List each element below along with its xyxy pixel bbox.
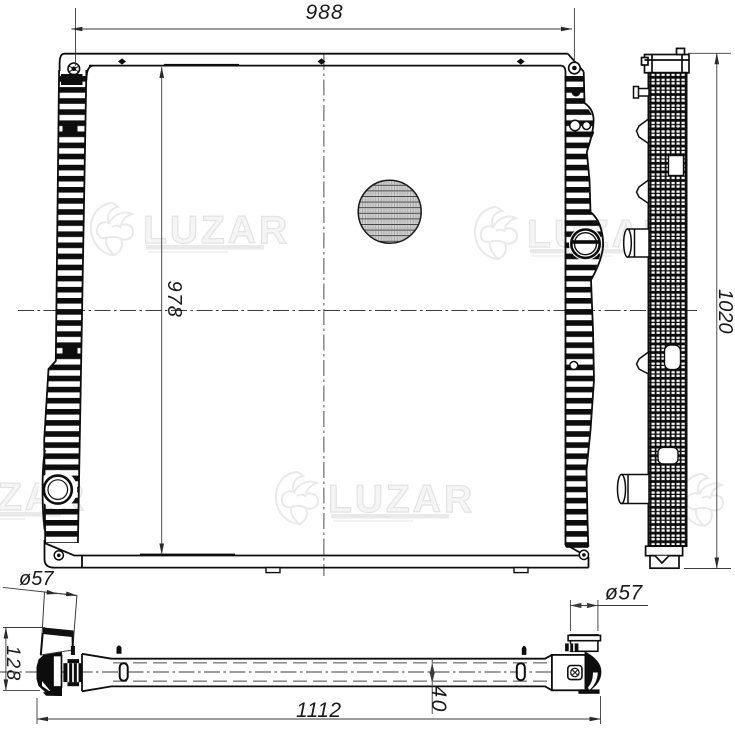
svg-text:988: 988 [306,1,344,24]
svg-text:1020: 1020 [714,289,735,334]
svg-text:40: 40 [427,686,450,714]
svg-text:978: 978 [163,281,185,319]
svg-text:ø57: ø57 [605,582,644,605]
svg-text:128: 128 [2,646,23,682]
svg-text:1112: 1112 [296,699,342,722]
svg-text:ø57: ø57 [19,568,54,590]
